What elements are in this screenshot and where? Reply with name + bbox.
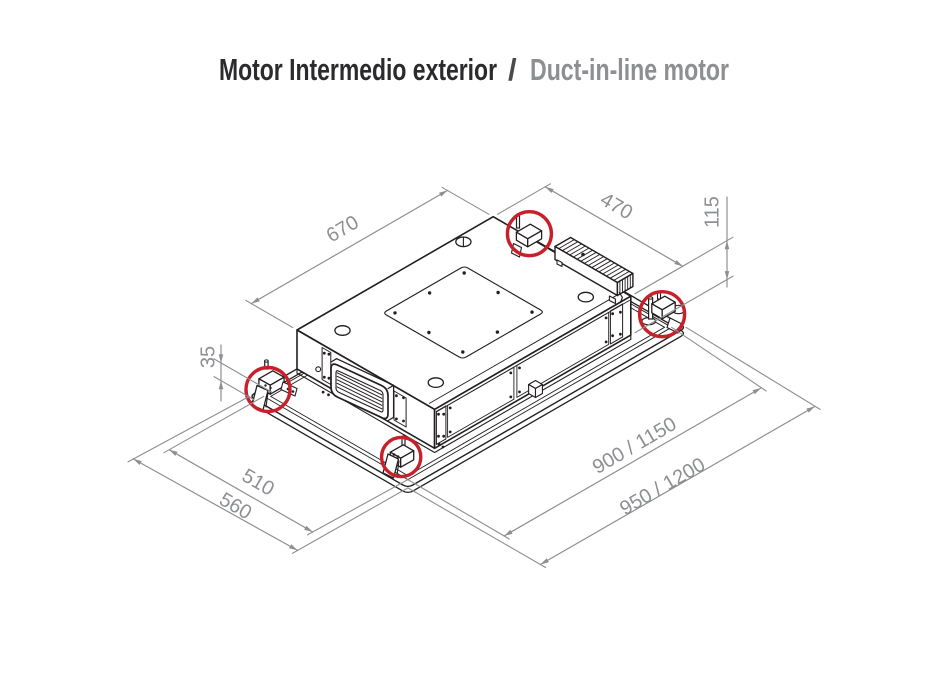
svg-text:35: 35 bbox=[197, 346, 219, 368]
svg-text:Duct-in-line motor: Duct-in-line motor bbox=[530, 52, 729, 87]
svg-text:Motor Intermedio exterior: Motor Intermedio exterior bbox=[219, 52, 497, 87]
svg-text:/: / bbox=[508, 52, 517, 87]
svg-text:115: 115 bbox=[701, 196, 723, 228]
